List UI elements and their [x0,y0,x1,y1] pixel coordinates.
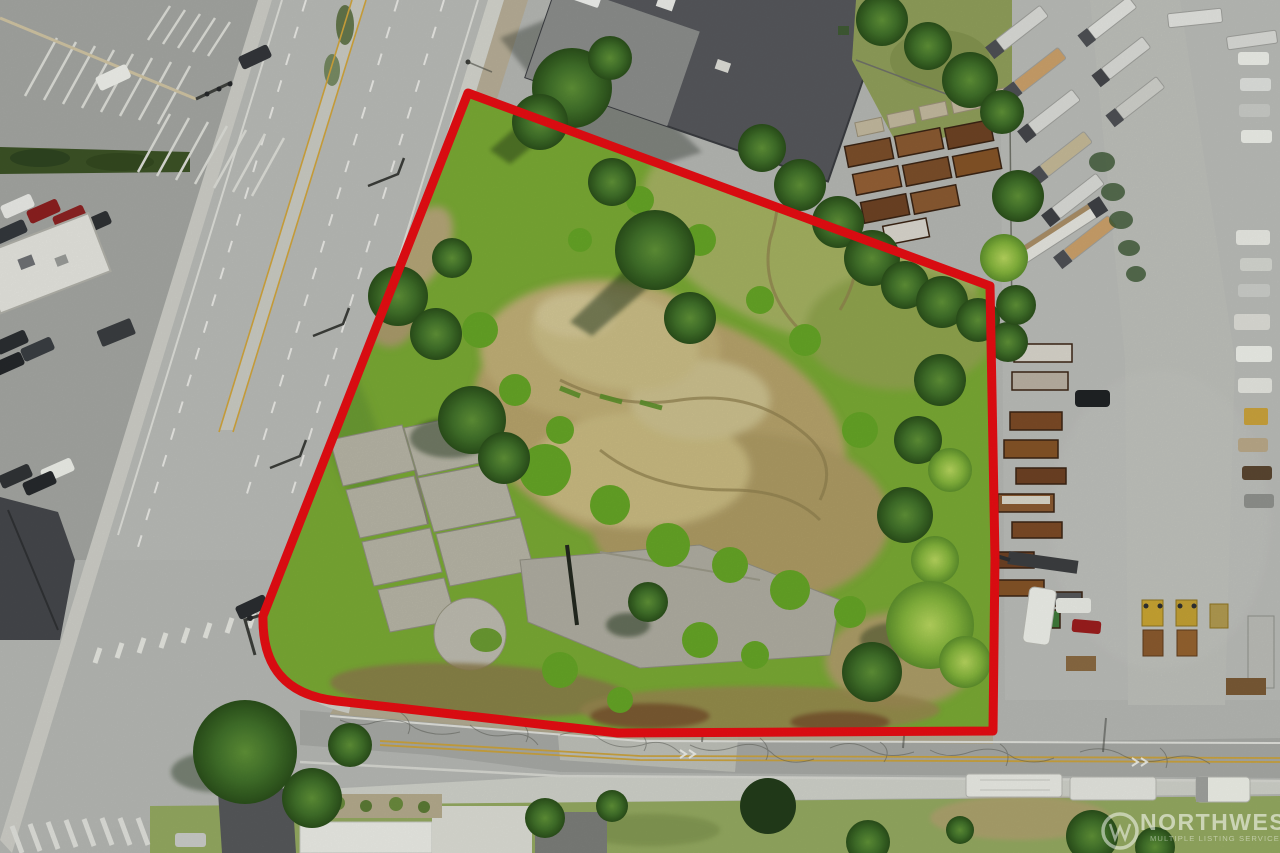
watermark-title: NORTHWEST [1140,809,1280,835]
photo-grain-overlay [0,0,1280,853]
aerial-photo: NORTHWEST MULTIPLE LISTING SERVICE [0,0,1280,853]
watermark-subtitle: MULTIPLE LISTING SERVICE [1150,834,1280,843]
aerial-photo-svg: NORTHWEST MULTIPLE LISTING SERVICE [0,0,1280,853]
